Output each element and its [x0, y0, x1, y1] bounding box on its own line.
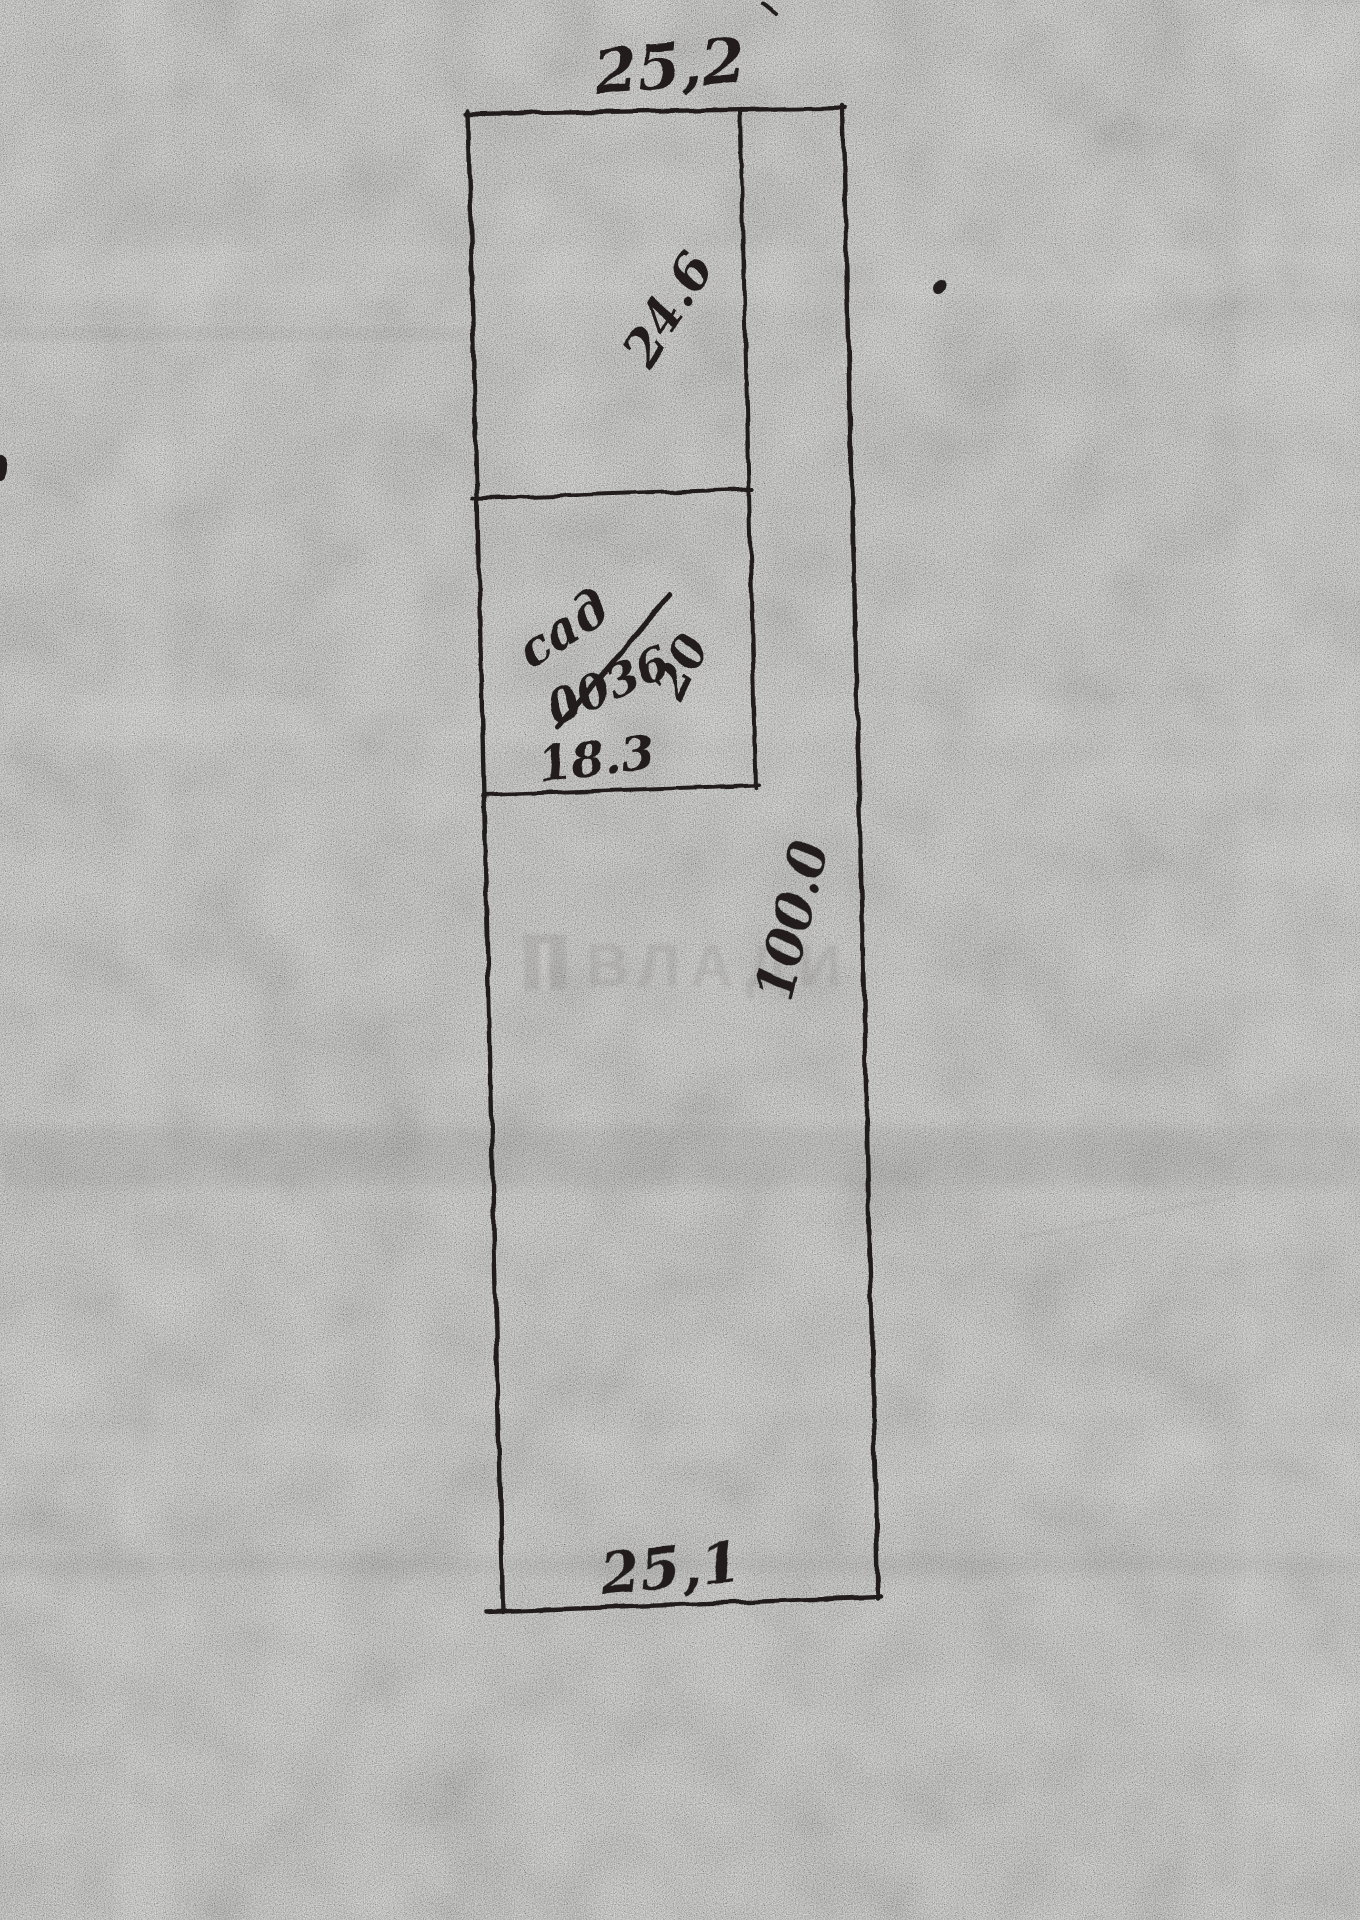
scanned-plot-sketch: ВЛАДИ: [0, 0, 1360, 1920]
watermark-logo-notch: [540, 944, 549, 990]
plot-sketch-canvas: ВЛАДИ: [0, 0, 1360, 1920]
label-bottom-width: 25,1: [596, 1528, 744, 1608]
label-top-width: 25,2: [590, 23, 748, 109]
